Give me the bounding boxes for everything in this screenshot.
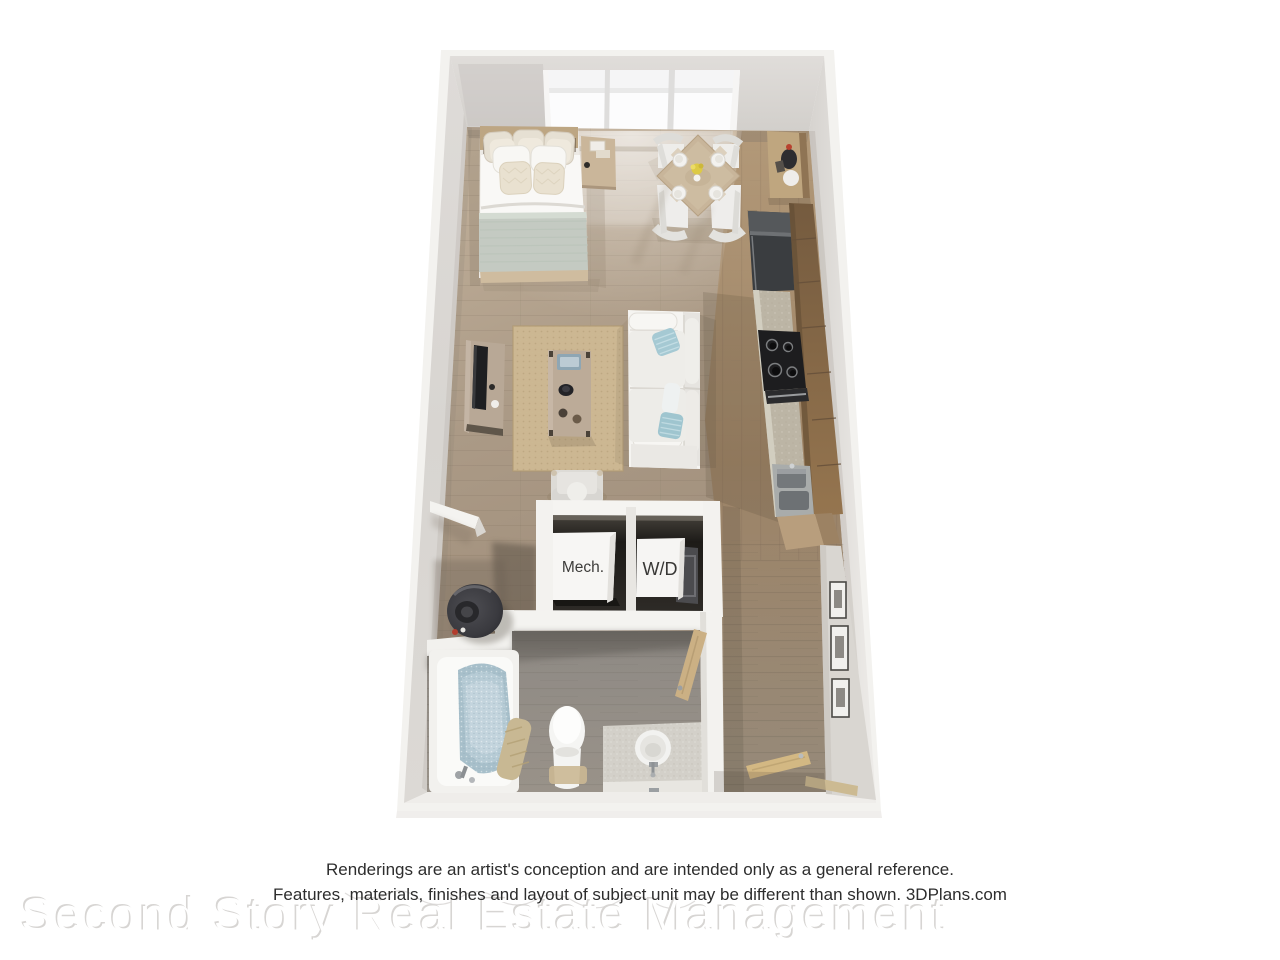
svg-text:Mech.: Mech.: [562, 559, 604, 576]
svg-text:W/D: W/D: [643, 559, 678, 579]
